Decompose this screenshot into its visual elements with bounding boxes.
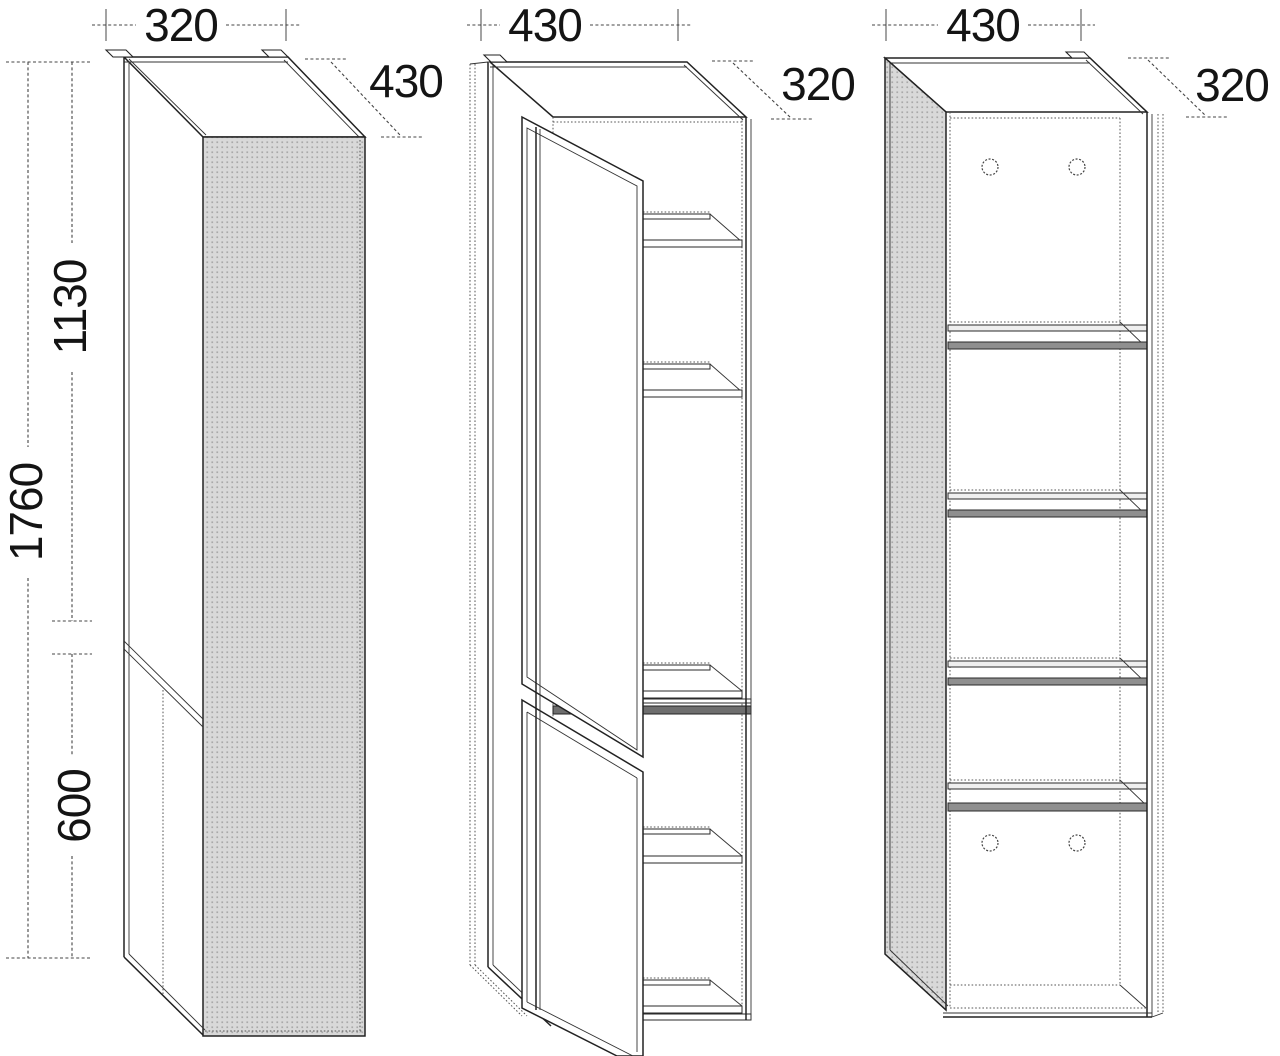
dim-label-width-open-doors: 430 — [508, 0, 582, 51]
dim-label-depth-open-shelves: 320 — [1195, 59, 1269, 111]
dim-label-height-total: 1760 — [0, 463, 52, 561]
shelf — [948, 780, 1147, 811]
dim-label-height-upper: 1130 — [44, 260, 96, 355]
side-panel-hatched — [203, 137, 365, 1036]
hinge-top — [1066, 52, 1090, 58]
shelf — [948, 490, 1147, 517]
dim-label-depth-open-doors: 320 — [781, 58, 855, 110]
shelf — [948, 658, 1147, 685]
cabinet-dimension-drawing: 320 430 1760 1130 600 — [0, 0, 1280, 1056]
dim-width-open-doors: 430 — [467, 0, 692, 51]
dim-width-open-shelves: 430 — [872, 0, 1095, 51]
dim-depth-open-shelves: 320 — [1128, 58, 1269, 117]
closed-cabinet-view: 320 430 1760 1130 600 — [0, 0, 443, 1036]
door-gap-upper — [124, 641, 203, 719]
open-door-cabinet-view: 430 320 — [467, 0, 855, 1056]
dim-label-width-open-shelves: 430 — [946, 0, 1020, 51]
dim-height-lower: 600 — [48, 654, 100, 958]
side-panel-hatched — [885, 58, 946, 1010]
technical-drawing-page: 320 430 1760 1130 600 — [0, 0, 1280, 1056]
open-door-cabinet-body — [470, 55, 751, 1056]
dim-width-closed: 320 — [92, 0, 300, 51]
dim-label-width-closed: 320 — [144, 0, 218, 51]
dim-label-height-lower: 600 — [48, 769, 100, 843]
hinge-left — [106, 50, 133, 57]
top-face — [124, 57, 365, 137]
dim-label-depth-closed: 430 — [369, 55, 443, 107]
top-face — [490, 62, 746, 117]
hinge-top — [484, 55, 507, 62]
mounting-holes — [982, 159, 1085, 851]
open-shelf-cabinet-body — [885, 52, 1163, 1017]
hinge-right — [262, 50, 288, 57]
open-shelf-cabinet-view: 430 320 — [872, 0, 1269, 1017]
closed-cabinet-body — [106, 50, 365, 1036]
shelf-bands — [948, 322, 1147, 811]
shelf — [948, 322, 1147, 349]
